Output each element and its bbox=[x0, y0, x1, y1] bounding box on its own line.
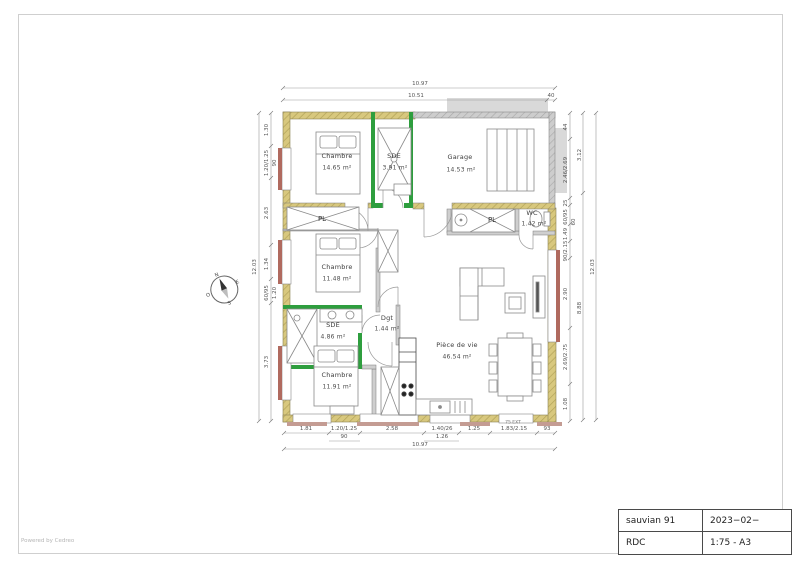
dim-top-overall: 10.97 bbox=[412, 81, 428, 87]
room-area-garage: 14.53 m² bbox=[447, 167, 476, 174]
dim-right-6: 90/2.15 bbox=[563, 240, 569, 261]
room-name-piece-de-vie: Pièce de vie bbox=[436, 341, 477, 349]
powered-by-footer: Powered by Cedreo bbox=[21, 538, 74, 544]
title-block-project: sauvian 91 bbox=[619, 510, 703, 531]
dim-right-2: 25 bbox=[563, 200, 569, 207]
shower-2 bbox=[287, 309, 317, 363]
room-area-dgt: 1.44 m² bbox=[375, 326, 400, 333]
dim-right-0: 44 bbox=[563, 124, 569, 131]
room-name-chambre1: Chambre bbox=[321, 152, 352, 160]
dim-left-5: 3.73 bbox=[264, 356, 270, 368]
room-area-chambre3: 11.91 m² bbox=[323, 384, 352, 391]
room-name-wc: WC bbox=[526, 209, 537, 217]
room-area-chambre2: 11.48 m² bbox=[323, 276, 352, 283]
coffee-table bbox=[505, 293, 525, 313]
dim-right-1: 2.46/2.69 bbox=[563, 157, 569, 183]
dim-left-1b: 90 bbox=[272, 160, 278, 167]
bed-1 bbox=[316, 132, 360, 194]
room-area-wc: 1.42 m² bbox=[522, 221, 547, 228]
dim-right-8: 2.69/2.75 bbox=[563, 344, 569, 370]
dim-bottom-6: 93 bbox=[544, 426, 551, 432]
bed-3 bbox=[314, 346, 358, 414]
dim-bottom-5: 1.83/2.15 bbox=[501, 426, 527, 432]
tv-unit bbox=[533, 276, 545, 318]
dim-bottom-2: 2.58 bbox=[386, 426, 398, 432]
dim-bottom-0: 1.81 bbox=[300, 426, 312, 432]
dim-bottom-1: 1.20/1.25 bbox=[331, 426, 357, 432]
dining-table bbox=[489, 333, 541, 401]
room-name-sde2: SDE bbox=[326, 321, 340, 329]
dim-bottom-1b: 90 bbox=[341, 434, 348, 440]
dim-right-7: 2.90 bbox=[563, 288, 569, 300]
dim-left-3: 1.34 bbox=[264, 258, 270, 270]
dim-left-4: 60/95 bbox=[264, 285, 270, 301]
room-area-piece-de-vie: 46.54 m² bbox=[443, 354, 472, 361]
dim-top-end: 40 bbox=[548, 93, 555, 99]
dim-bottom-3b: 1.26 bbox=[436, 434, 448, 440]
floor-plan-drawing bbox=[0, 0, 800, 565]
dim-left-0: 1.30 bbox=[264, 124, 270, 136]
dim-top-inner: 10.51 bbox=[408, 93, 424, 99]
dim-left-1: 1.20/1.25 bbox=[264, 150, 270, 176]
sofa bbox=[460, 268, 504, 320]
dim-left-2: 2.63 bbox=[264, 207, 270, 219]
room-name-chambre2: Chambre bbox=[321, 263, 352, 271]
garage-door bbox=[487, 129, 534, 191]
dim-right-5: 1.49 bbox=[563, 228, 569, 240]
title-block-scale: 1:75 - A3 bbox=[703, 532, 791, 554]
title-block-date: 2023−02− bbox=[703, 510, 791, 531]
shower-1 bbox=[378, 128, 411, 195]
kitchen-counter bbox=[416, 399, 472, 415]
title-block: sauvian 91 2023−02− RDC 1:75 - A3 bbox=[618, 509, 792, 555]
dim-right-overall: 12.03 bbox=[590, 259, 596, 275]
closet-tall-1 bbox=[378, 230, 398, 272]
dimension-lines bbox=[257, 86, 598, 451]
drawing-sheet: Chambre 14.65 m² SDE 3.91 m² Garage 14.5… bbox=[0, 0, 800, 565]
dim-bottom-5-note: 75 EXT bbox=[505, 421, 521, 426]
dim-right-4: 60 bbox=[571, 219, 577, 226]
dim-right-m0: 3.12 bbox=[577, 149, 583, 161]
room-area-sde2: 4.86 m² bbox=[321, 334, 346, 341]
room-area-sde1: 3.91 m² bbox=[383, 165, 408, 172]
dim-bottom-overall: 10.97 bbox=[412, 442, 428, 448]
dim-right-3: 60/95 bbox=[563, 209, 569, 225]
closet-label-pl1: PL bbox=[318, 215, 326, 223]
dim-bottom-4: 1.25 bbox=[468, 426, 480, 432]
room-name-sde1: SDE bbox=[387, 152, 401, 160]
room-name-garage: Garage bbox=[447, 153, 472, 161]
room-name-dgt: Dgt bbox=[381, 314, 393, 322]
dim-right-m1: 8.88 bbox=[577, 302, 583, 314]
room-name-chambre3: Chambre bbox=[321, 371, 352, 379]
dim-bottom-3: 1.40/26 bbox=[431, 426, 452, 432]
kitchen-block bbox=[399, 338, 416, 415]
closet-label-pl2: PL bbox=[488, 216, 496, 224]
kitchen-closet bbox=[381, 367, 399, 415]
closet-pl-2 bbox=[452, 209, 515, 232]
dim-left-4b: 1.20 bbox=[272, 287, 278, 299]
dim-left-overall: 12.03 bbox=[252, 259, 258, 275]
room-area-chambre1: 14.65 m² bbox=[323, 165, 352, 172]
title-block-level: RDC bbox=[619, 532, 703, 554]
dim-right-9: 1.08 bbox=[563, 398, 569, 410]
